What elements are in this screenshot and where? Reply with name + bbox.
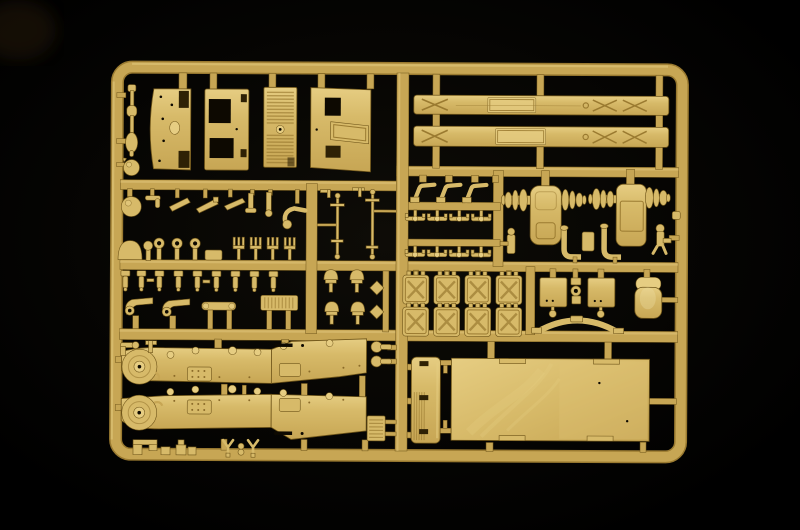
hull-side-panel	[150, 89, 191, 170]
louvered-grille-panel	[263, 87, 296, 167]
chassis-rail-2	[414, 126, 669, 147]
chassis-rail-1	[414, 95, 669, 115]
slatted-tailgate	[411, 357, 440, 443]
linkage-stack	[571, 278, 581, 304]
small-vent-grille	[367, 416, 385, 441]
seat	[635, 277, 662, 318]
sprue-photo	[0, 0, 800, 530]
twin-window-panel	[204, 89, 248, 170]
windshield-frame-panel	[310, 88, 370, 172]
cargo-bed-floor	[451, 358, 649, 441]
